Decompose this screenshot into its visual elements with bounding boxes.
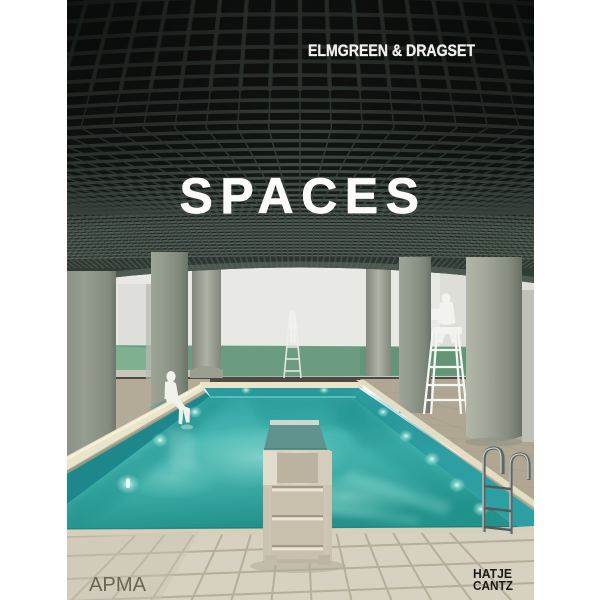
svg-text:SPACES: SPACES [180, 168, 427, 224]
svg-text:APMA: APMA [89, 574, 147, 596]
svg-text:ELMGREEN & DRAGSET: ELMGREEN & DRAGSET [308, 42, 475, 60]
svg-text:CANTZ: CANTZ [473, 578, 513, 593]
